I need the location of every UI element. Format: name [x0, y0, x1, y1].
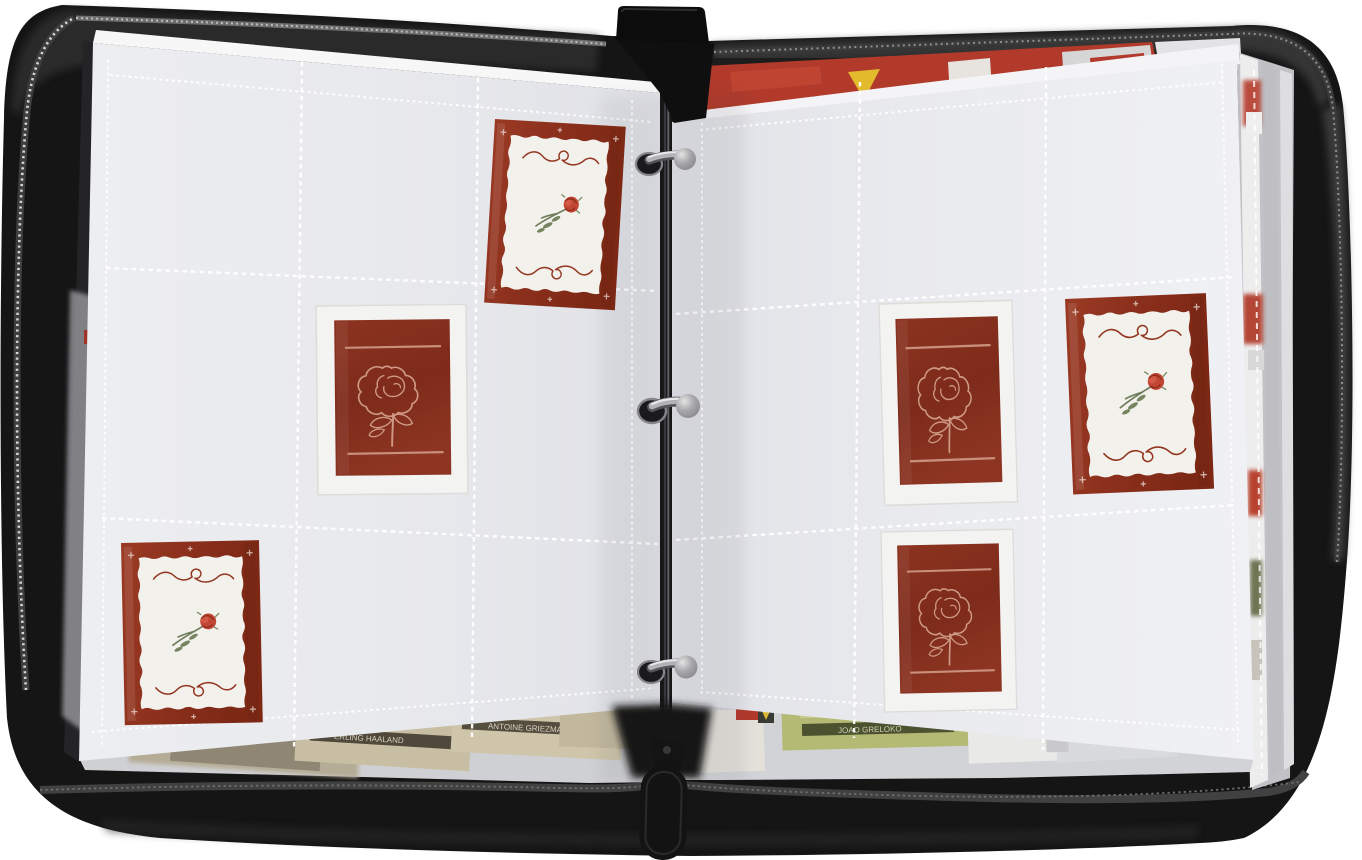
svg-text:JOAO GRELOKO: JOAO GRELOKO [838, 724, 902, 735]
